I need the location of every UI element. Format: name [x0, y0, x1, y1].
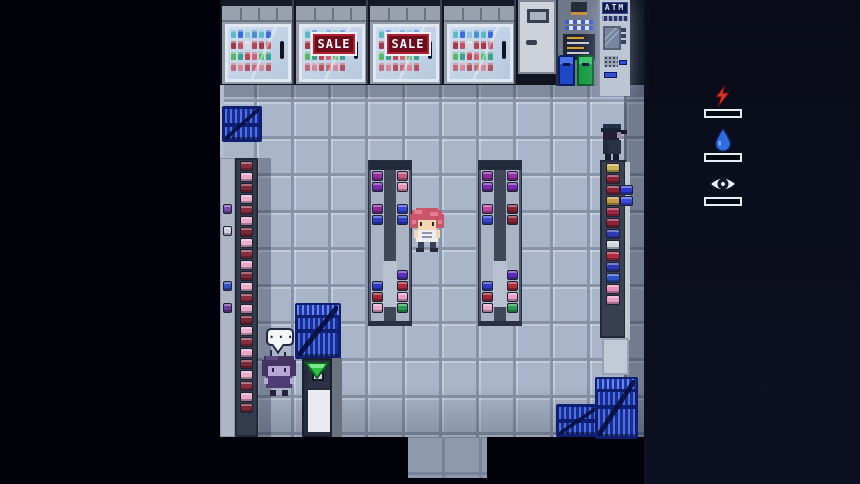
sale-sign: SALE	[385, 32, 431, 56]
product-item	[482, 171, 493, 181]
product-item	[240, 381, 253, 391]
product-item	[372, 182, 383, 192]
glass-sheen	[228, 27, 288, 79]
product-item	[240, 161, 253, 171]
product-item	[240, 359, 253, 369]
product-item	[223, 281, 232, 291]
aisle-cap	[479, 161, 521, 170]
trash-can-green[interactable]	[577, 55, 594, 86]
product-item	[240, 183, 253, 193]
product-item	[620, 185, 633, 195]
aisle-shelf-right	[478, 160, 522, 326]
door-handle	[526, 40, 537, 45]
atm-card-slot	[619, 60, 627, 65]
cooler-glass	[225, 24, 291, 82]
product-item	[240, 194, 253, 204]
product-item	[372, 281, 383, 291]
product-item	[223, 303, 232, 313]
drink-cooler-2[interactable]: SALE	[296, 0, 368, 84]
product-item	[240, 315, 253, 325]
basket-stack-tall	[595, 377, 638, 439]
hud-energy	[702, 84, 744, 118]
cooler-glass: SALE	[373, 24, 439, 82]
speech-bubble: ...	[266, 328, 294, 346]
atm-marquee	[602, 16, 628, 21]
product-item	[507, 215, 518, 225]
glass-sheen	[450, 27, 510, 79]
product-item	[507, 270, 518, 280]
aisle-pillar	[493, 261, 507, 307]
product-item	[240, 238, 253, 248]
product-item	[606, 295, 620, 305]
cooler-glass	[447, 24, 513, 82]
product-item	[372, 303, 383, 313]
product-item	[397, 281, 408, 291]
product-item	[372, 171, 383, 181]
aisle-pillar	[383, 261, 397, 307]
speech-bubble-text: ...	[268, 330, 292, 338]
product-item	[606, 251, 620, 261]
sale-sign: SALE	[311, 32, 357, 56]
product-item	[240, 337, 253, 347]
product-item	[240, 293, 253, 303]
store-entrance	[408, 437, 487, 478]
shelf-endcap	[602, 338, 629, 375]
product-item	[240, 304, 253, 314]
product-item	[240, 260, 253, 270]
product-item	[397, 270, 408, 280]
product-item	[372, 292, 383, 302]
product-item	[482, 215, 493, 225]
product-item	[240, 172, 253, 182]
product-item	[223, 226, 232, 236]
product-item	[482, 292, 493, 302]
shelf-left-wall	[235, 158, 258, 437]
product-item	[397, 171, 408, 181]
product-item	[606, 262, 620, 272]
product-item	[507, 171, 518, 181]
product-item	[240, 348, 253, 358]
drink-cooler-4[interactable]	[444, 0, 516, 84]
energy-meter	[704, 109, 742, 118]
eye-icon	[708, 172, 738, 196]
cooler-panel	[370, 6, 440, 22]
atm-screen	[603, 26, 621, 50]
product-item	[606, 273, 620, 283]
product-item	[397, 292, 408, 302]
drink-cooler-1[interactable]	[222, 0, 294, 84]
product-item	[240, 249, 253, 259]
aisle-products-right	[506, 170, 519, 321]
product-item	[606, 218, 620, 228]
product-item	[240, 271, 253, 281]
hud-hydration	[702, 128, 744, 162]
basket-stack-checkout	[295, 303, 341, 359]
atm-cash-slot	[604, 72, 617, 78]
aisle-cap	[369, 161, 411, 170]
product-item	[240, 392, 253, 402]
product-item	[606, 174, 620, 184]
product-item	[482, 204, 493, 214]
quest-marker-arrow	[304, 360, 330, 380]
product-item	[620, 196, 633, 206]
product-item	[240, 370, 253, 380]
product-item	[240, 216, 253, 226]
counter-side	[332, 358, 342, 437]
product-item	[240, 205, 253, 215]
product-item	[507, 292, 518, 302]
cup-icon	[571, 2, 587, 15]
product-item	[507, 281, 518, 291]
status-hud	[702, 84, 744, 216]
product-item	[482, 281, 493, 291]
drink-cooler-3[interactable]: SALE	[370, 0, 442, 84]
cooler-panel	[222, 6, 292, 22]
product-item	[397, 303, 408, 313]
machine-label	[565, 26, 593, 30]
product-item	[606, 163, 620, 173]
product-item	[507, 204, 518, 214]
hydration-meter	[704, 153, 742, 162]
product-item	[606, 240, 620, 250]
cooler-handle	[280, 41, 284, 59]
product-item	[240, 227, 253, 237]
product-item	[240, 403, 253, 413]
atm-keypad	[604, 56, 618, 67]
cooler-panel	[444, 6, 514, 22]
cooler-glass: SALE	[299, 24, 365, 82]
product-item	[507, 303, 518, 313]
product-item	[606, 229, 620, 239]
door-window	[527, 9, 549, 23]
store-interior: SALE SALE	[220, 0, 644, 437]
basket-stack-topleft	[222, 106, 262, 142]
product-item	[482, 303, 493, 313]
basket-rim	[597, 379, 636, 392]
perception-meter	[704, 197, 742, 206]
lightning-bolt-icon	[711, 84, 735, 108]
product-item	[223, 204, 232, 214]
product-item	[240, 326, 253, 336]
product-item	[606, 284, 620, 294]
npc-purple-haired[interactable]	[258, 350, 300, 402]
cooler-handle	[502, 41, 506, 59]
shelf-left-wall-side	[220, 158, 235, 437]
trash-can-blue[interactable]	[558, 55, 575, 86]
background-right-shade	[644, 0, 860, 484]
shelf-side-products	[618, 184, 635, 211]
product-item	[372, 204, 383, 214]
cooler-panel	[296, 6, 366, 22]
register-face	[308, 390, 330, 432]
game-viewport: SALE SALE	[0, 0, 860, 484]
atm-sign: ATM	[602, 2, 628, 14]
atm-machine[interactable]: ATM	[598, 0, 630, 96]
player-character	[406, 208, 448, 256]
water-droplet-icon	[712, 128, 734, 152]
staff-door[interactable]	[518, 0, 556, 74]
hud-perception	[702, 172, 744, 206]
product-item	[397, 182, 408, 192]
product-item	[507, 182, 518, 192]
machine-label	[565, 20, 593, 24]
basket-rim	[297, 305, 339, 318]
product-item	[372, 215, 383, 225]
product-item	[240, 282, 253, 292]
product-item	[482, 182, 493, 192]
